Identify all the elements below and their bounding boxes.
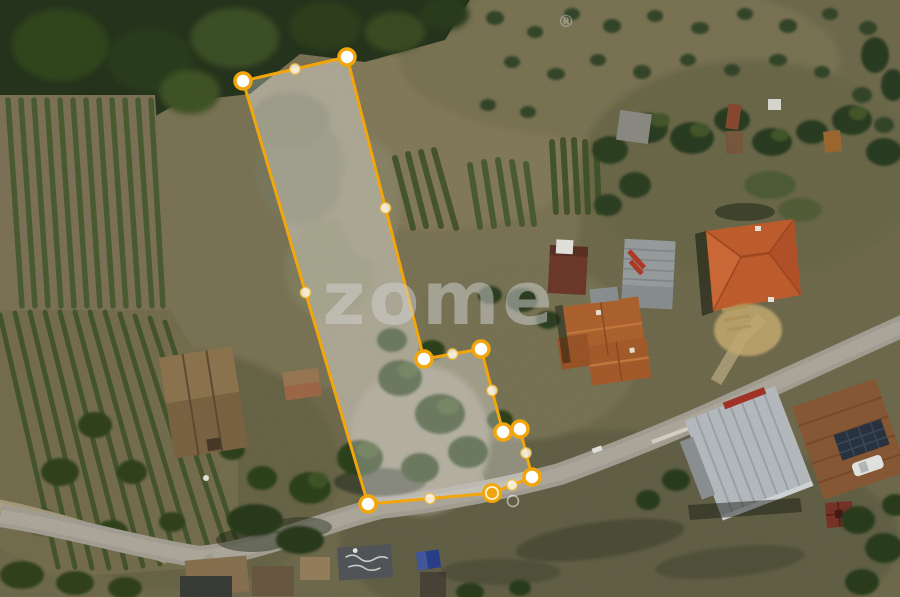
parcel-vertex-6[interactable]: [524, 469, 540, 485]
parcel-vertex-8[interactable]: [360, 496, 376, 512]
parcel-vertex-4[interactable]: [495, 424, 511, 440]
parcel-boundary[interactable]: [243, 57, 532, 504]
parcel-midpoint-handle[interactable]: [447, 349, 457, 359]
parcel-midpoint-handle[interactable]: [507, 480, 517, 490]
parcel-midpoint-handle[interactable]: [425, 493, 435, 503]
map-viewport[interactable]: zome®: [0, 0, 900, 597]
ghost-vertex-ring: [508, 496, 519, 507]
parcel-midpoint-handle[interactable]: [521, 448, 531, 458]
parcel-midpoint-handle[interactable]: [290, 64, 300, 74]
parcel-vertex-1[interactable]: [339, 49, 355, 65]
parcel-midpoint-handle[interactable]: [380, 203, 390, 213]
parcel-midpoint-handle[interactable]: [300, 287, 310, 297]
parcel-vertex-5[interactable]: [512, 421, 528, 437]
parcel-vertex-2[interactable]: [416, 351, 432, 367]
parcel-overlay: [0, 0, 900, 597]
parcel-vertex-0[interactable]: [235, 73, 251, 89]
parcel-vertex-active-core: [487, 488, 497, 498]
parcel-midpoint-handle[interactable]: [487, 385, 497, 395]
parcel-vertex-3[interactable]: [473, 341, 489, 357]
